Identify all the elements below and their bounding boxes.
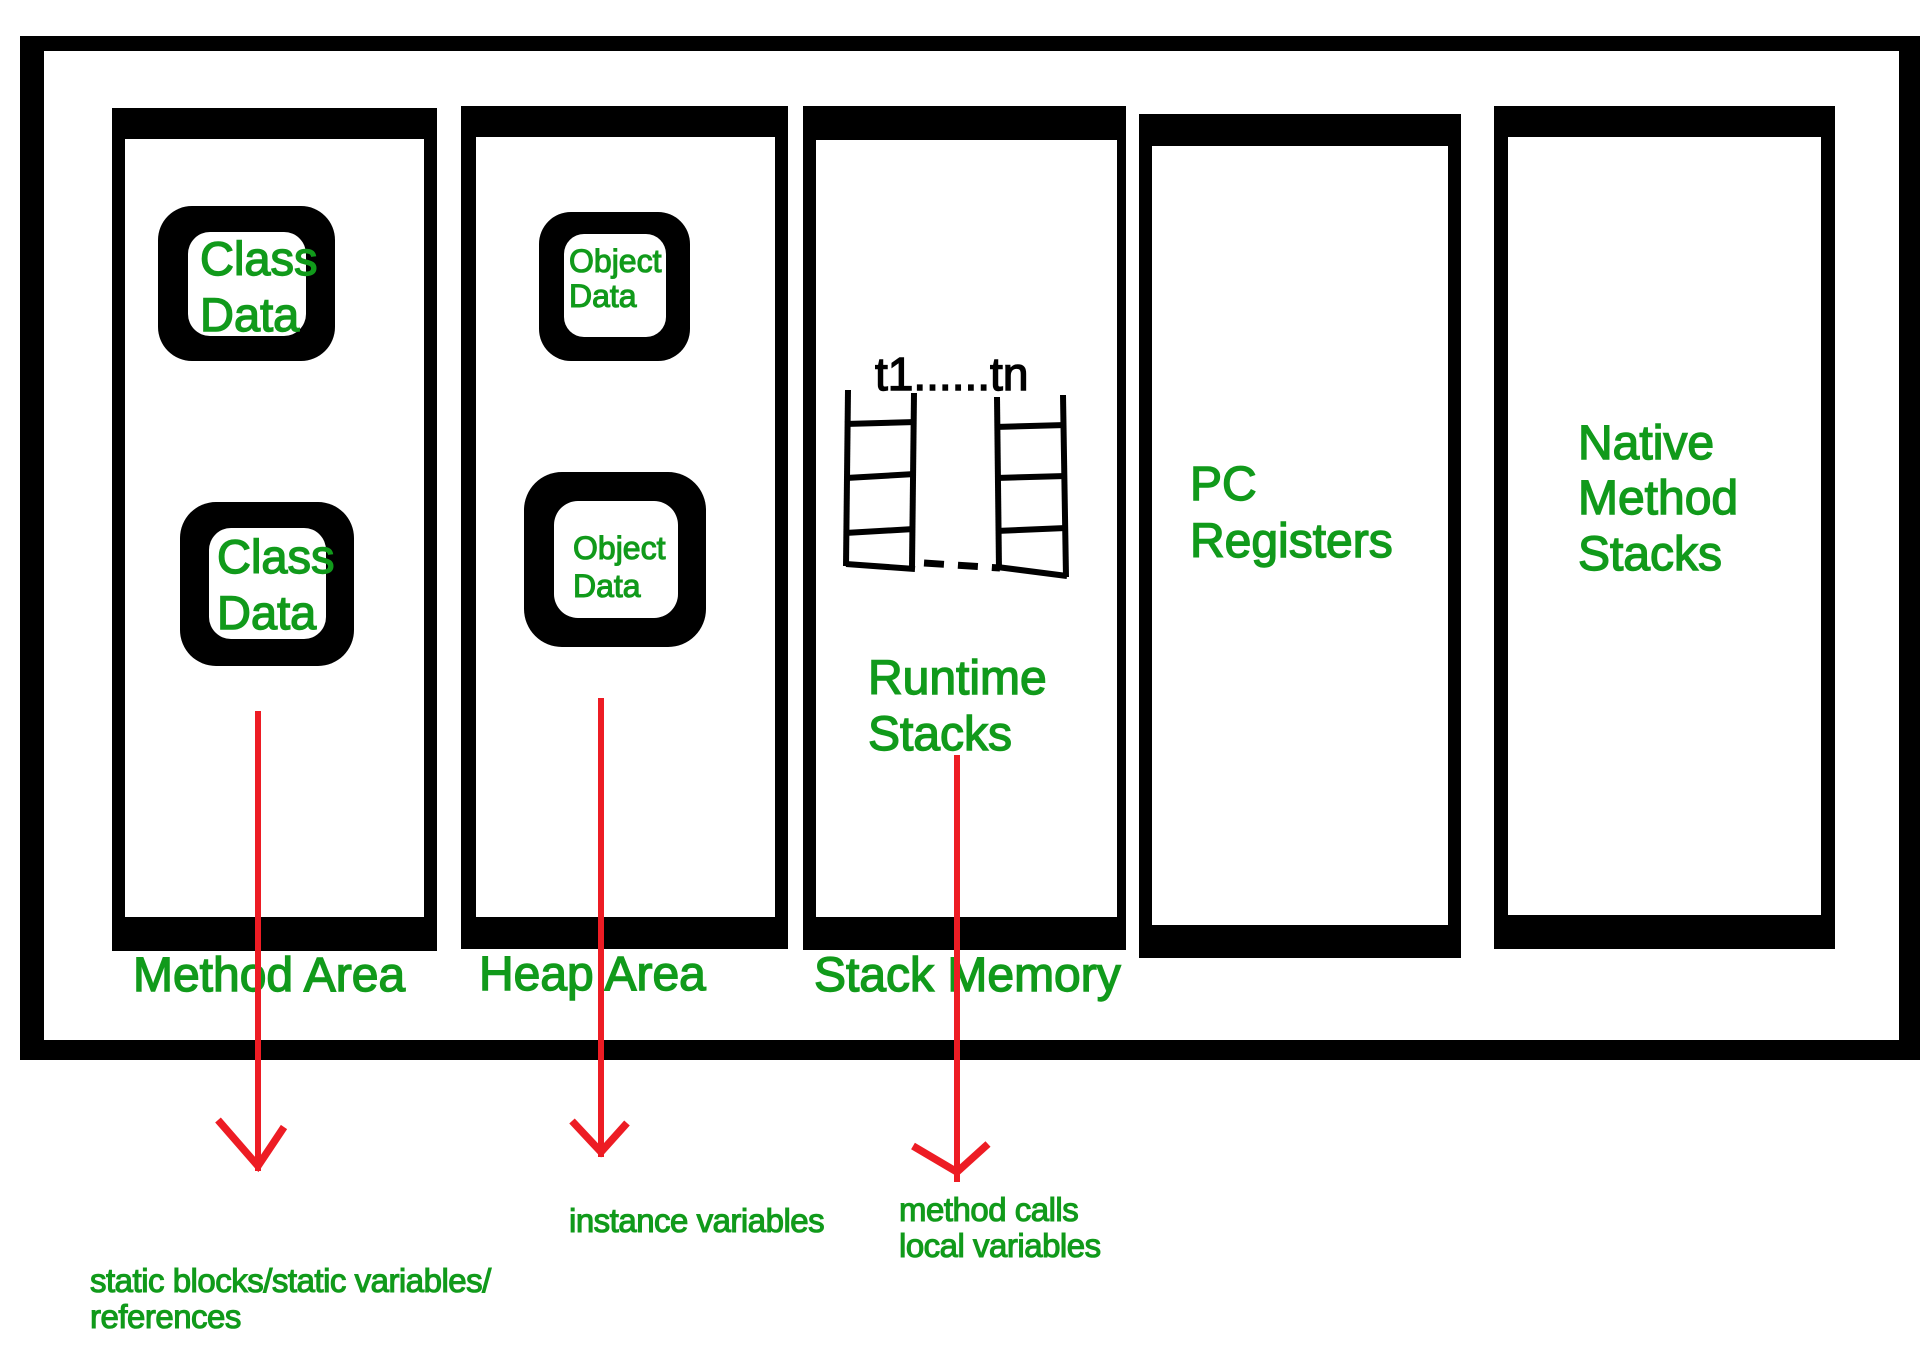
svg-text:method calls: method calls — [899, 1191, 1078, 1228]
svg-text:Runtime: Runtime — [868, 652, 1047, 705]
svg-text:Stacks: Stacks — [1578, 528, 1722, 581]
svg-text:PC: PC — [1190, 458, 1257, 511]
svg-text:Registers: Registers — [1190, 515, 1393, 568]
svg-text:references: references — [90, 1298, 241, 1335]
svg-text:Stack Memory: Stack Memory — [814, 949, 1121, 1002]
svg-text:instance variables: instance variables — [569, 1202, 824, 1239]
svg-text:Data: Data — [200, 288, 300, 341]
svg-text:Heap Area: Heap Area — [479, 948, 706, 1001]
svg-text:Object: Object — [569, 243, 662, 279]
svg-text:static blocks/static variables: static blocks/static variables/ — [90, 1262, 492, 1299]
svg-text:Data: Data — [569, 278, 637, 314]
svg-text:Data: Data — [217, 586, 317, 639]
svg-text:Method: Method — [1578, 472, 1738, 525]
svg-text:Class: Class — [217, 530, 335, 583]
svg-text:Stacks: Stacks — [868, 708, 1012, 761]
svg-text:Class: Class — [200, 232, 318, 285]
svg-text:local variables: local variables — [899, 1227, 1101, 1264]
svg-text:Method Area: Method Area — [133, 949, 405, 1002]
svg-text:Native: Native — [1578, 417, 1714, 470]
svg-text:Data: Data — [573, 568, 641, 604]
svg-text:Object: Object — [573, 530, 666, 566]
svg-text:t1......tn: t1......tn — [875, 348, 1028, 400]
